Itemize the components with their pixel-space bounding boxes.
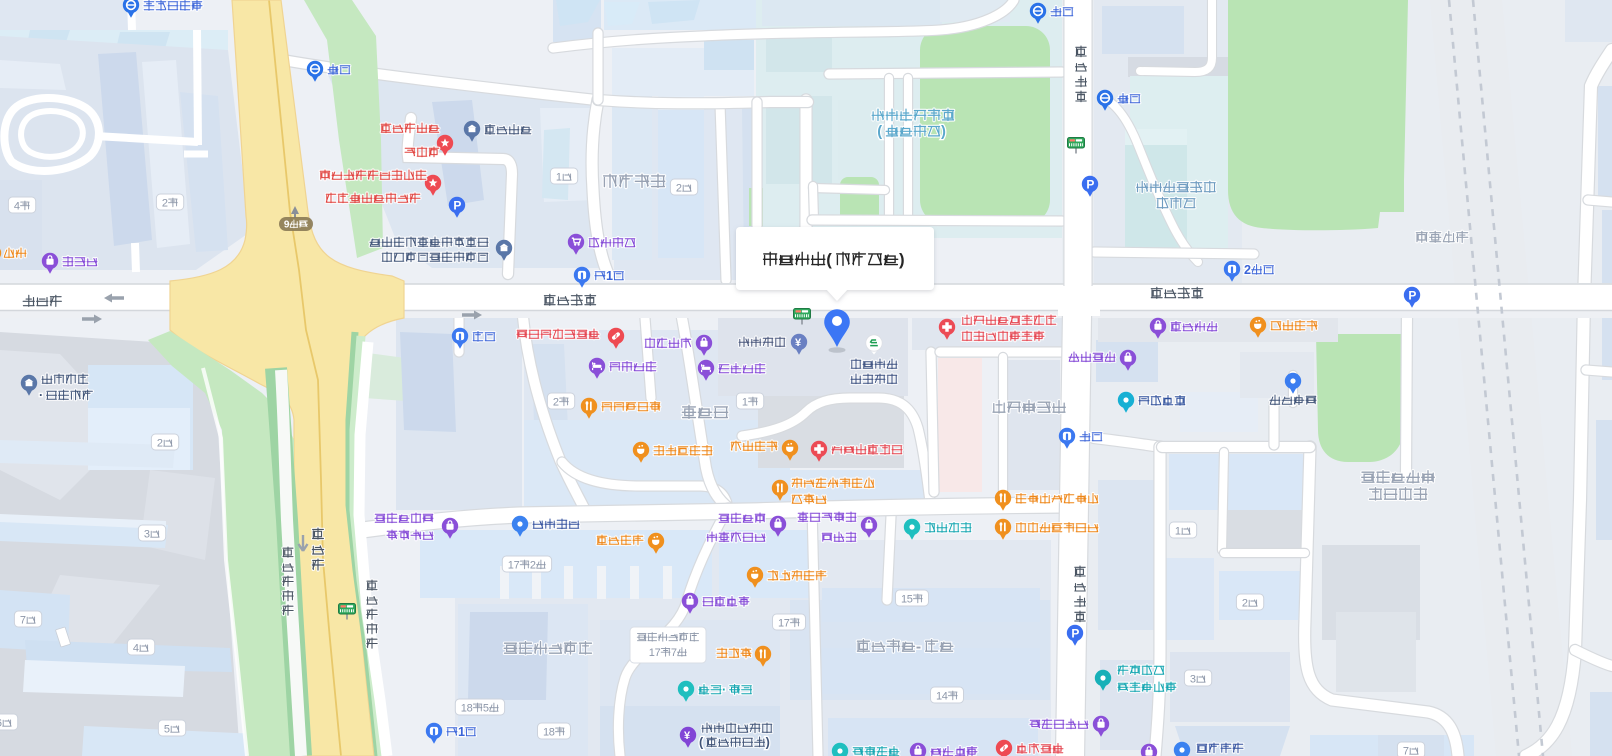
svg-text:-: -	[916, 638, 921, 655]
svg-text:7: 7	[655, 647, 661, 659]
svg-text:6: 6	[0, 717, 2, 729]
svg-text:2: 2	[157, 437, 163, 449]
svg-text:7: 7	[671, 647, 677, 659]
svg-text:7: 7	[1403, 745, 1409, 756]
svg-text:2: 2	[676, 182, 682, 194]
svg-text:2: 2	[530, 559, 536, 571]
svg-text:3: 3	[144, 528, 150, 540]
svg-text:5: 5	[907, 593, 913, 605]
svg-text:P: P	[1086, 177, 1094, 191]
svg-text:P: P	[1071, 626, 1079, 640]
svg-text:): )	[941, 124, 946, 140]
svg-text:2: 2	[553, 396, 559, 408]
svg-text:8: 8	[549, 726, 555, 738]
svg-text:1: 1	[1175, 525, 1181, 537]
svg-text:·: ·	[722, 683, 726, 697]
svg-text:P: P	[453, 198, 461, 212]
svg-text:¥: ¥	[795, 337, 802, 349]
svg-text:7: 7	[20, 614, 26, 626]
svg-text:8: 8	[467, 702, 473, 714]
svg-text:1: 1	[556, 171, 562, 183]
svg-text:2: 2	[162, 197, 168, 209]
svg-text:2: 2	[1242, 597, 1248, 609]
svg-text:1: 1	[458, 725, 465, 739]
svg-text:2: 2	[1244, 263, 1251, 277]
svg-text:): )	[899, 250, 905, 269]
svg-text:P: P	[1408, 288, 1416, 302]
svg-text:·: ·	[39, 388, 43, 402]
svg-text:1: 1	[742, 396, 748, 408]
svg-text:7: 7	[784, 617, 790, 629]
svg-text:5: 5	[483, 702, 489, 714]
svg-text:4: 4	[942, 690, 948, 702]
svg-text:5: 5	[164, 723, 170, 735]
svg-text:(: (	[826, 250, 832, 269]
svg-text:(: (	[877, 124, 882, 140]
svg-text:1: 1	[606, 269, 613, 283]
svg-text:4: 4	[14, 200, 20, 212]
svg-text:4: 4	[133, 642, 139, 654]
svg-text:¥: ¥	[684, 730, 691, 742]
svg-text:9: 9	[284, 219, 290, 230]
svg-text:): )	[766, 735, 770, 749]
svg-text:7: 7	[514, 559, 520, 571]
svg-text:3: 3	[1190, 673, 1196, 685]
